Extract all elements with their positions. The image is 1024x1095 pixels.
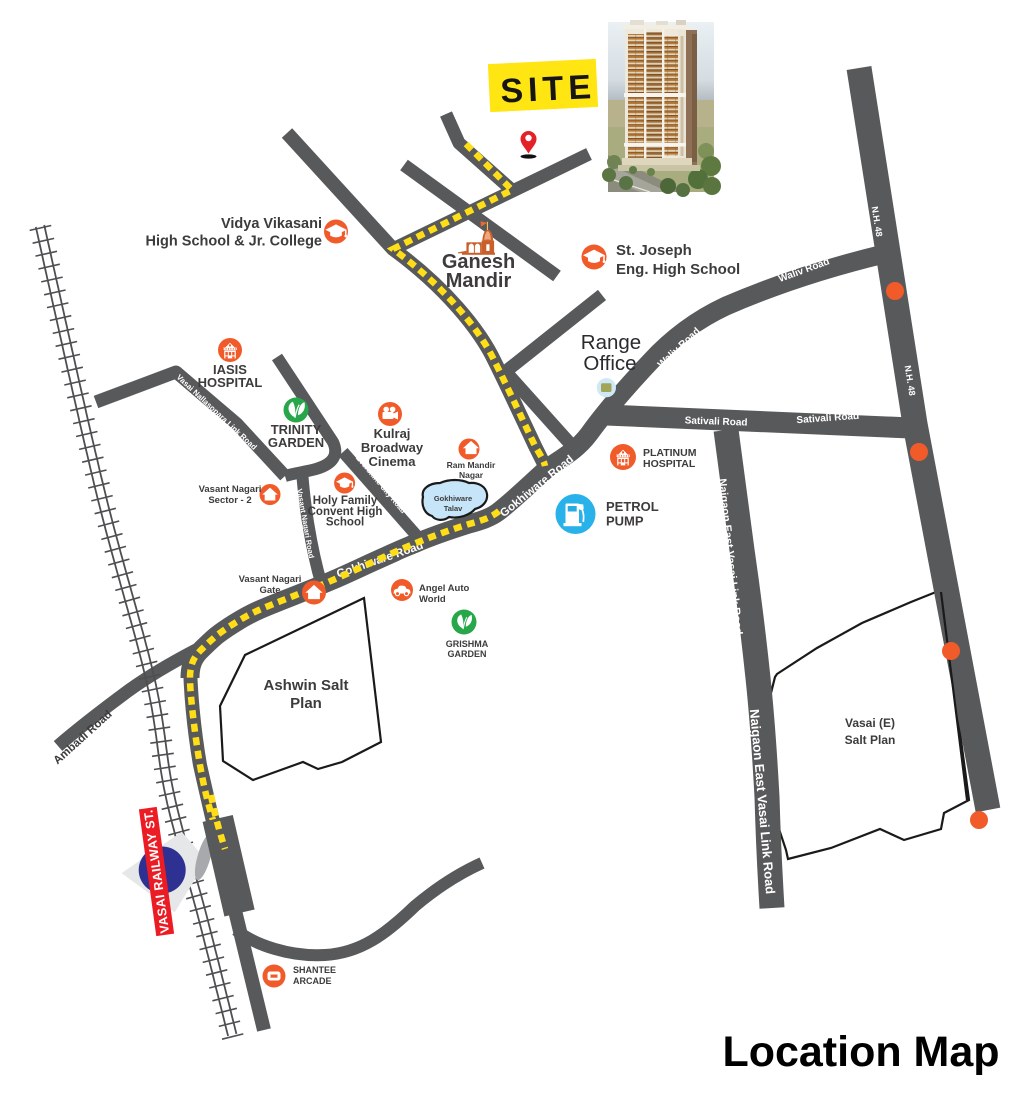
svg-text:Sativali Road: Sativali Road <box>685 415 748 428</box>
svg-text:HOSPITAL: HOSPITAL <box>643 458 696 470</box>
svg-text:Location Map: Location Map <box>722 1028 999 1076</box>
svg-text:GARDEN: GARDEN <box>268 435 324 450</box>
svg-text:School: School <box>326 516 364 528</box>
svg-text:Vidya Vikasani: Vidya Vikasani <box>221 216 322 232</box>
svg-text:St. Joseph: St. Joseph <box>616 242 692 259</box>
svg-text:SITE: SITE <box>500 68 597 111</box>
svg-text:SHANTEE: SHANTEE <box>293 965 336 975</box>
svg-text:World: World <box>419 594 446 605</box>
svg-text:High School & Jr. College: High School & Jr. College <box>146 234 322 250</box>
svg-text:Office: Office <box>583 352 636 375</box>
svg-text:Talav: Talav <box>444 504 463 513</box>
svg-text:GARDEN: GARDEN <box>447 649 486 659</box>
svg-text:ARCADE: ARCADE <box>293 976 332 986</box>
svg-text:Broadway: Broadway <box>361 440 424 455</box>
svg-text:Eng. High School: Eng. High School <box>616 261 740 278</box>
svg-text:Ashwin Salt: Ashwin Salt <box>263 677 348 694</box>
svg-text:Vasant Nagari: Vasant Nagari <box>199 484 262 495</box>
svg-text:Vasai (E): Vasai (E) <box>845 716 895 730</box>
svg-text:GRISHMA: GRISHMA <box>446 639 489 649</box>
svg-text:Salt Plan: Salt Plan <box>845 733 896 747</box>
svg-text:Range: Range <box>581 331 641 354</box>
svg-text:Angel Auto: Angel Auto <box>419 583 470 594</box>
svg-text:PETROL: PETROL <box>606 499 659 514</box>
svg-text:Ram Mandir: Ram Mandir <box>447 460 496 470</box>
svg-text:Sector - 2: Sector - 2 <box>208 495 251 506</box>
svg-text:Gate: Gate <box>259 585 280 596</box>
svg-text:PUMP: PUMP <box>606 514 644 529</box>
svg-text:Plan: Plan <box>290 695 322 712</box>
svg-text:Gokhiware: Gokhiware <box>434 494 472 503</box>
svg-text:Mandir: Mandir <box>446 270 512 292</box>
svg-text:HOSPITAL: HOSPITAL <box>198 375 263 390</box>
svg-text:Cinema: Cinema <box>369 454 417 469</box>
svg-text:Kulraj: Kulraj <box>374 426 411 441</box>
svg-text:Nagar: Nagar <box>459 470 484 480</box>
svg-text:Vasant Nagari: Vasant Nagari <box>239 574 302 585</box>
